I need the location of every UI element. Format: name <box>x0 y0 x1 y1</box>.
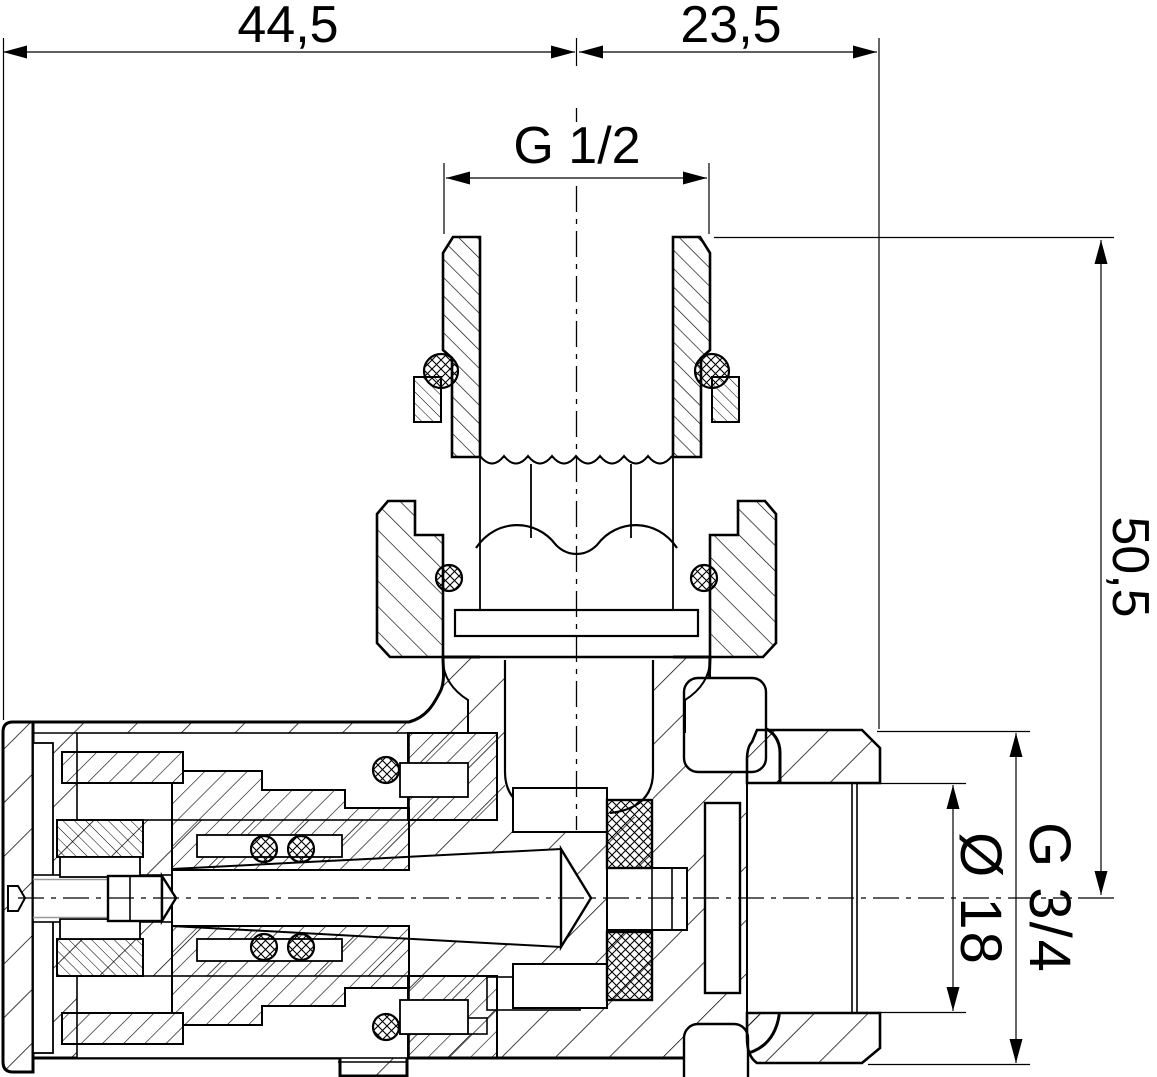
arrowhead-left-icon <box>446 172 470 185</box>
seal-holder-lower <box>513 964 607 1008</box>
arrowhead-right-icon <box>683 172 707 185</box>
outlet-wall-lower <box>747 1013 880 1063</box>
arrowhead-up-icon <box>1095 240 1108 264</box>
arrowhead-down-icon <box>1010 1039 1023 1063</box>
nut-wing-left <box>377 501 443 657</box>
piston-hub <box>607 868 687 930</box>
dim-label-d18: Ø 18 <box>948 832 1013 966</box>
seal-upper <box>607 800 652 868</box>
valve-section-drawing: 44,5 23,5 G 1/2 50,5 Ø 18 G 3/ <box>0 0 1157 1077</box>
stem-o-ring <box>251 934 277 960</box>
cavity-pocket-lower <box>684 1024 748 1077</box>
stem-o-ring <box>288 934 314 960</box>
dimension-g12: G 1/2 <box>444 117 709 234</box>
arrowhead-right-icon <box>551 46 575 59</box>
oring-seat-upper <box>400 763 468 797</box>
pipe-o-ring-right <box>695 354 729 388</box>
gland-follower-upper <box>60 857 140 877</box>
gland-upper <box>57 820 143 857</box>
arrowhead-left-icon <box>579 46 603 59</box>
nut-o-ring-left <box>436 565 462 591</box>
arrowhead-up-icon <box>1010 733 1023 757</box>
nut-o-ring-right <box>691 565 717 591</box>
nut-wing-right <box>710 501 776 657</box>
technical-drawing-page: 44,5 23,5 G 1/2 50,5 Ø 18 G 3/ <box>0 0 1157 1077</box>
bonnet-o-ring <box>373 1014 399 1040</box>
arrowhead-down-icon <box>1095 871 1108 895</box>
pipe-wall-right <box>673 237 710 457</box>
seal-holder-upper <box>513 788 607 832</box>
outlet-wall-upper <box>747 730 880 783</box>
arrowhead-left-icon <box>3 46 27 59</box>
stem-o-ring <box>288 836 314 862</box>
bonnet-flange-upper <box>62 752 183 783</box>
arrowhead-down-icon <box>947 987 960 1011</box>
gland-lower <box>57 939 143 976</box>
pipe-wall-left <box>443 237 480 457</box>
dim-label-23-5: 23,5 <box>680 0 781 54</box>
stem-o-ring <box>251 836 277 862</box>
bonnet-flange-lower <box>62 1013 183 1044</box>
bonnet-o-ring <box>373 757 399 783</box>
pipe-o-ring-left <box>424 354 458 388</box>
arrowhead-up-icon <box>947 785 960 809</box>
oring-seat-lower <box>400 1000 468 1034</box>
arrowhead-right-icon <box>853 46 877 59</box>
dim-label-50-5: 50,5 <box>1101 516 1157 617</box>
dim-label-g34: G 3/4 <box>1017 822 1082 974</box>
dim-label-g12: G 1/2 <box>513 117 640 175</box>
seal-lower <box>607 932 652 1000</box>
dim-label-44-5: 44,5 <box>237 0 338 54</box>
